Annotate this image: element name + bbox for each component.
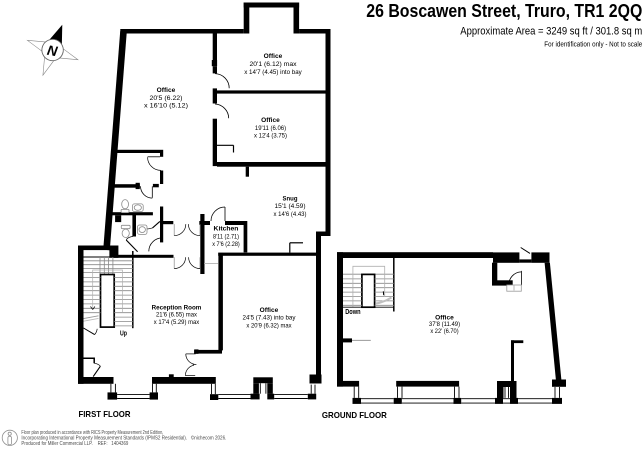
svg-text:x 22' (6.70): x 22' (6.70) xyxy=(430,328,458,335)
svg-text:21'6 (6.55) max: 21'6 (6.55) max xyxy=(156,312,197,319)
svg-text:8'11 (2.71): 8'11 (2.71) xyxy=(213,233,239,240)
svg-text:x 16'10 (5.12): x 16'10 (5.12) xyxy=(144,103,188,110)
svg-text:x 14'7 (4.45) into bay: x 14'7 (4.45) into bay xyxy=(244,69,302,76)
svg-text:26 Boscawen Street, Truro, TR1: 26 Boscawen Street, Truro, TR1 2QQ xyxy=(366,0,642,21)
svg-text:FIRST FLOOR: FIRST FLOOR xyxy=(79,409,131,419)
svg-text:x 20'9 (6.32) max: x 20'9 (6.32) max xyxy=(246,322,291,329)
svg-text:Approximate Area = 3249 sq ft: Approximate Area = 3249 sq ft / 301.8 sq… xyxy=(460,25,642,37)
svg-text:Up: Up xyxy=(120,330,127,337)
svg-text:15'1 (4.59): 15'1 (4.59) xyxy=(275,203,306,210)
svg-text:19'11 (6.06): 19'11 (6.06) xyxy=(255,125,286,132)
svg-text:x 14'6 (4.43): x 14'6 (4.43) xyxy=(274,211,307,218)
svg-text:Office: Office xyxy=(157,87,176,94)
svg-text:x 7'6 (2.28): x 7'6 (2.28) xyxy=(212,241,240,248)
svg-text:Down: Down xyxy=(345,309,360,316)
svg-text:Reception Room: Reception Room xyxy=(152,304,202,311)
svg-text:Produced for Miller Commercial: Produced for Miller Commercial LLP. REF:… xyxy=(21,441,128,447)
svg-text:For identification only - Not: For identification only - Not to scale xyxy=(544,41,642,48)
svg-text:Office: Office xyxy=(264,53,283,60)
svg-text:Kitchen: Kitchen xyxy=(214,226,239,233)
svg-text:x 12'4 (3.75): x 12'4 (3.75) xyxy=(254,133,287,140)
svg-text:20'1 (6.12) max: 20'1 (6.12) max xyxy=(250,61,297,68)
svg-text:GROUND FLOOR: GROUND FLOOR xyxy=(322,410,387,420)
svg-text:20'5 (6.22): 20'5 (6.22) xyxy=(150,95,183,102)
svg-text:x 17'4 (5.29) max: x 17'4 (5.29) max xyxy=(154,319,200,326)
svg-text:24'5 (7.43) into bay: 24'5 (7.43) into bay xyxy=(243,315,297,322)
svg-text:Office: Office xyxy=(260,307,279,314)
svg-text:Snug: Snug xyxy=(283,195,298,202)
svg-text:Office: Office xyxy=(261,117,280,124)
